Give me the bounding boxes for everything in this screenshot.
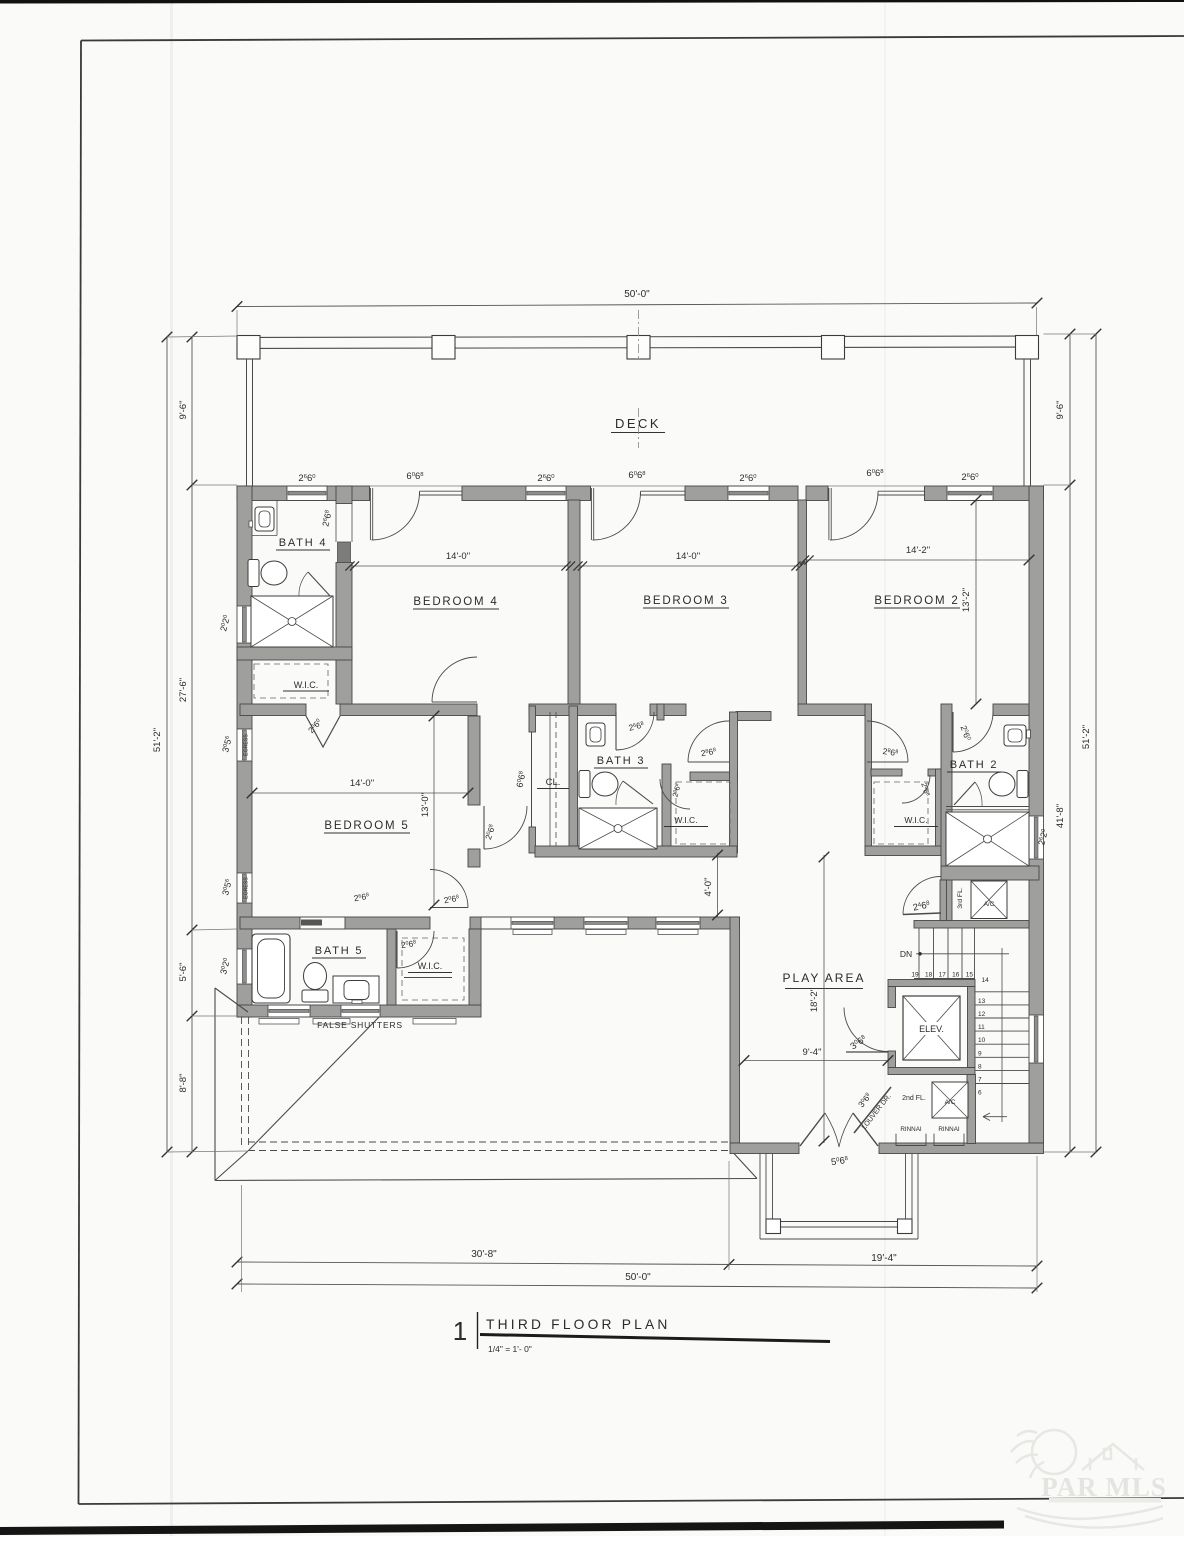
svg-text:9'-6": 9'-6": [1055, 401, 1066, 420]
svg-text:BEDROOM 3: BEDROOM 3: [643, 595, 728, 607]
svg-text:17: 17: [939, 972, 947, 979]
svg-text:BATH 4: BATH 4: [279, 537, 328, 549]
svg-text:50'-0": 50'-0": [625, 1272, 651, 1283]
svg-text:RINNAI: RINNAI: [938, 1126, 960, 1133]
svg-text:6: 6: [978, 1090, 982, 1097]
svg-text:18'-2": 18'-2": [809, 988, 820, 1012]
svg-text:W.I.C.: W.I.C.: [294, 680, 319, 690]
svg-text:FALSE SHUTTERS: FALSE SHUTTERS: [317, 1020, 403, 1030]
svg-text:9'-4": 9'-4": [803, 1047, 822, 1058]
svg-text:14'-0": 14'-0": [350, 778, 374, 789]
svg-text:W.I.C.: W.I.C.: [674, 815, 697, 825]
svg-text:BATH 5: BATH 5: [315, 945, 364, 957]
svg-text:1/4" = 1'- 0": 1/4" = 1'- 0": [488, 1344, 532, 1354]
svg-text:14: 14: [982, 977, 990, 984]
svg-text:14'-0": 14'-0": [676, 551, 700, 562]
svg-text:51'-2": 51'-2": [1081, 725, 1092, 749]
svg-text:BEDROOM 5: BEDROOM 5: [324, 820, 409, 832]
svg-text:10: 10: [978, 1037, 986, 1044]
svg-text:7: 7: [978, 1077, 982, 1084]
svg-text:19: 19: [911, 972, 919, 979]
svg-text:RINNAI: RINNAI: [900, 1126, 922, 1133]
svg-text:13'-0": 13'-0": [420, 793, 431, 817]
svg-text:14'-0": 14'-0": [446, 551, 470, 562]
svg-text:EGRESS: EGRESS: [244, 877, 250, 899]
svg-text:BEDROOM 4: BEDROOM 4: [413, 596, 498, 608]
svg-text:50'-0": 50'-0": [624, 289, 650, 300]
svg-text:PAR MLS: PAR MLS: [1041, 1472, 1167, 1502]
svg-text:EGRESS: EGRESS: [244, 734, 250, 756]
svg-text:DN: DN: [900, 949, 912, 959]
svg-text:27'-6": 27'-6": [178, 678, 189, 702]
svg-text:16: 16: [952, 972, 960, 979]
svg-text:THIRD FLOOR PLAN: THIRD FLOOR PLAN: [486, 1317, 671, 1332]
svg-text:14'-2": 14'-2": [906, 545, 930, 556]
svg-text:9'-6": 9'-6": [178, 401, 189, 420]
svg-text:BEDROOM 2: BEDROOM 2: [874, 595, 959, 607]
svg-text:BATH 2: BATH 2: [950, 759, 999, 771]
svg-text:41'-8": 41'-8": [1055, 804, 1066, 828]
svg-text:2nd FL.: 2nd FL.: [902, 1095, 926, 1102]
svg-text:15: 15: [966, 972, 974, 979]
svg-text:W.I.C.: W.I.C.: [904, 815, 927, 825]
svg-text:19'-4": 19'-4": [871, 1253, 897, 1264]
svg-text:51'-2": 51'-2": [152, 728, 163, 752]
svg-text:12: 12: [978, 1011, 986, 1018]
svg-text:DECK: DECK: [615, 416, 661, 431]
svg-text:A/C: A/C: [945, 1099, 956, 1106]
svg-text:9: 9: [978, 1050, 982, 1057]
svg-text:18: 18: [925, 972, 933, 979]
svg-text:13'-2": 13'-2": [961, 588, 972, 612]
svg-text:30'-8": 30'-8": [471, 1249, 497, 1260]
svg-text:ELEV.: ELEV.: [919, 1024, 944, 1034]
svg-text:13: 13: [978, 998, 986, 1005]
svg-text:BATH 3: BATH 3: [597, 755, 646, 767]
svg-text:8: 8: [978, 1063, 982, 1070]
svg-text:A/C: A/C: [984, 901, 995, 908]
svg-text:5'-6": 5'-6": [178, 963, 189, 982]
svg-text:1: 1: [453, 1316, 467, 1346]
svg-text:3rd FL.: 3rd FL.: [957, 887, 964, 909]
svg-text:11: 11: [978, 1024, 985, 1031]
svg-text:8'-8": 8'-8": [178, 1074, 189, 1093]
svg-text:CL.: CL.: [546, 777, 561, 788]
svg-text:W.I.C.: W.I.C.: [418, 961, 443, 971]
svg-text:4'-0": 4'-0": [703, 878, 714, 897]
